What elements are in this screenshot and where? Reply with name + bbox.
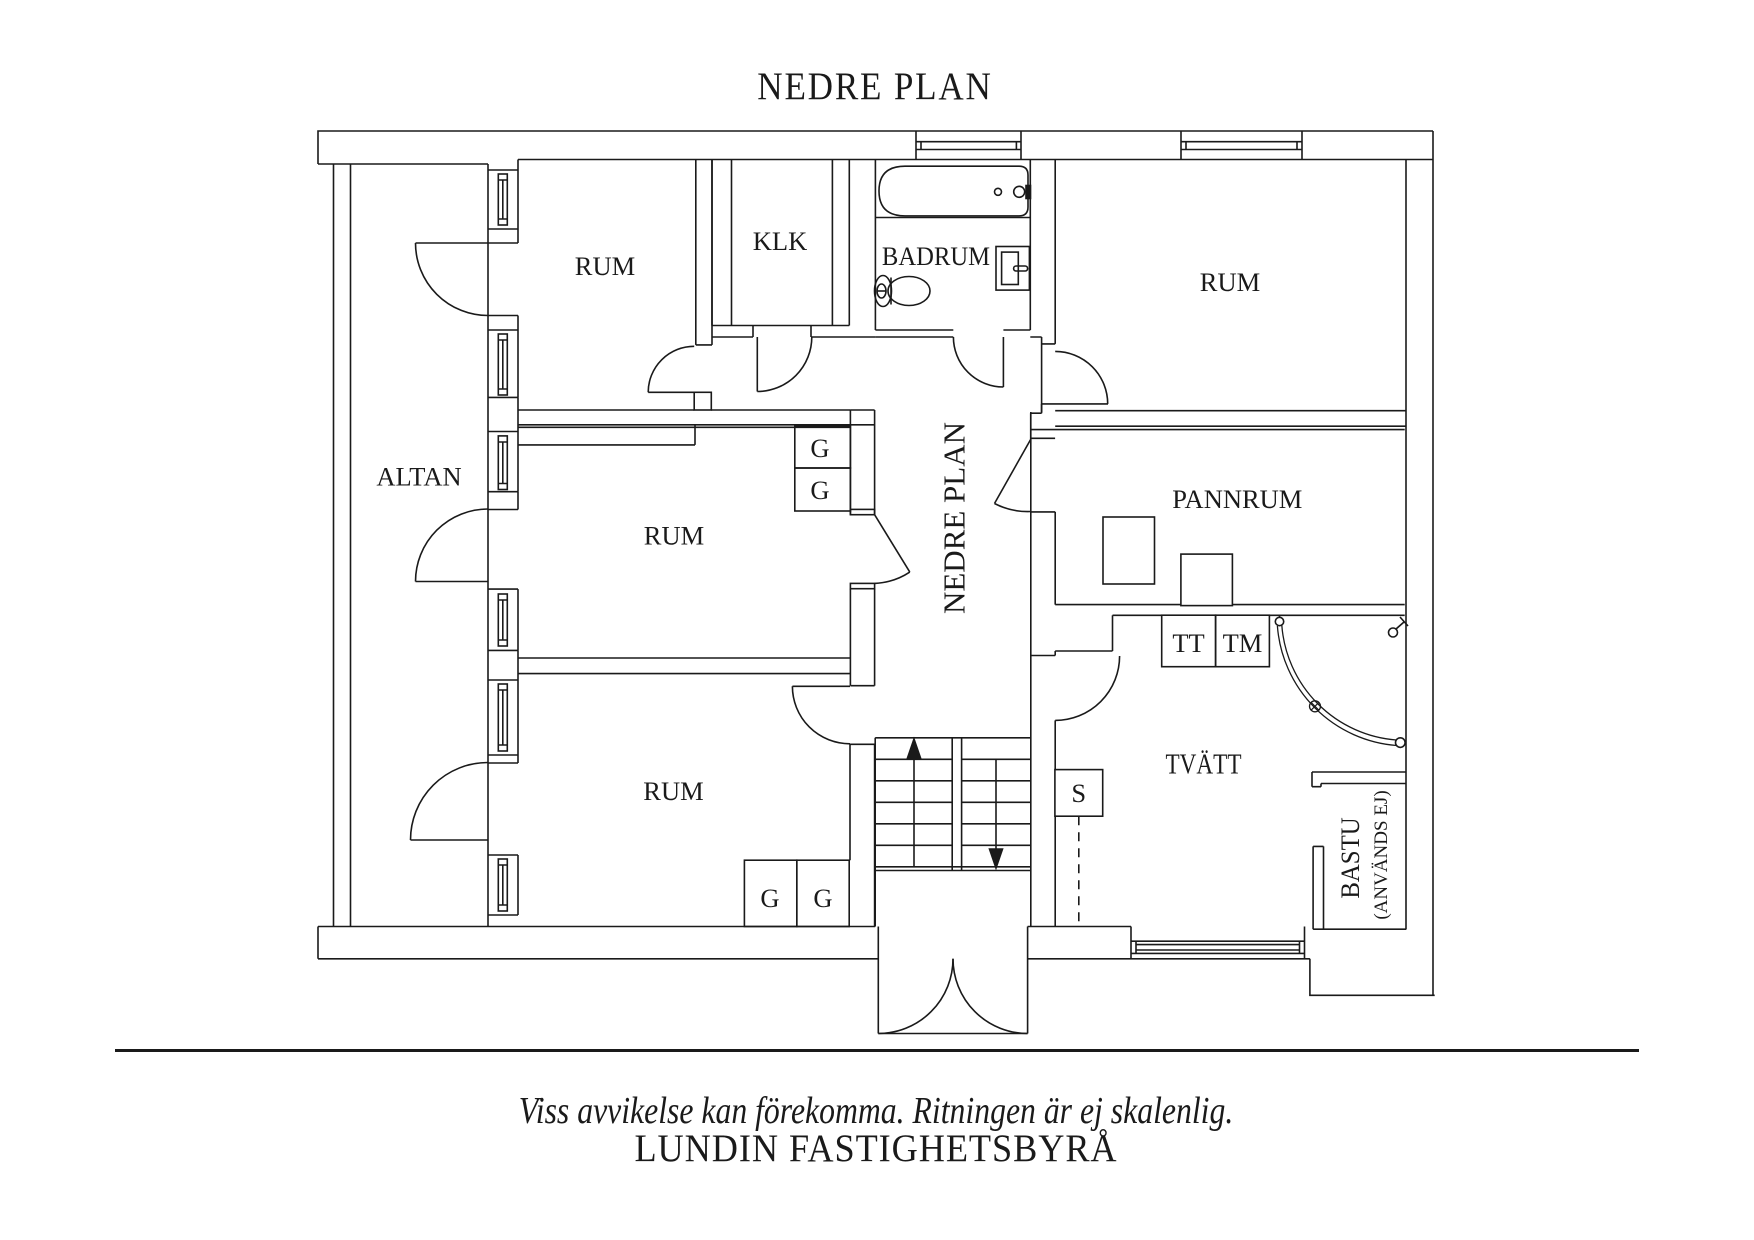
svg-text:(ANVÄNDS EJ): (ANVÄNDS EJ) [1371, 790, 1392, 919]
svg-text:BADRUM: BADRUM [882, 241, 990, 271]
svg-text:BASTU: BASTU [1335, 817, 1365, 898]
svg-text:S: S [1071, 778, 1086, 808]
svg-text:NEDRE PLAN: NEDRE PLAN [757, 65, 992, 108]
svg-text:ALTAN: ALTAN [376, 462, 461, 492]
svg-text:G: G [810, 433, 829, 463]
svg-text:TVÄTT: TVÄTT [1165, 748, 1241, 780]
svg-text:Viss avvikelse kan förekomma.: Viss avvikelse kan förekomma. Ritningen … [519, 1089, 1234, 1131]
svg-text:RUM: RUM [643, 776, 703, 806]
svg-text:KLK: KLK [753, 226, 807, 256]
svg-text:TM: TM [1223, 628, 1263, 658]
svg-text:NEDRE PLAN: NEDRE PLAN [937, 422, 972, 614]
svg-text:RUM: RUM [644, 521, 704, 551]
svg-text:G: G [810, 475, 829, 505]
svg-text:G: G [760, 883, 779, 913]
svg-text:PANNRUM: PANNRUM [1172, 484, 1302, 514]
svg-text:LUNDIN FASTIGHETSBYRÅ: LUNDIN FASTIGHETSBYRÅ [634, 1127, 1117, 1170]
svg-text:RUM: RUM [1200, 267, 1260, 297]
svg-text:RUM: RUM [575, 251, 635, 281]
svg-text:TT: TT [1172, 628, 1204, 658]
svg-text:G: G [813, 883, 832, 913]
